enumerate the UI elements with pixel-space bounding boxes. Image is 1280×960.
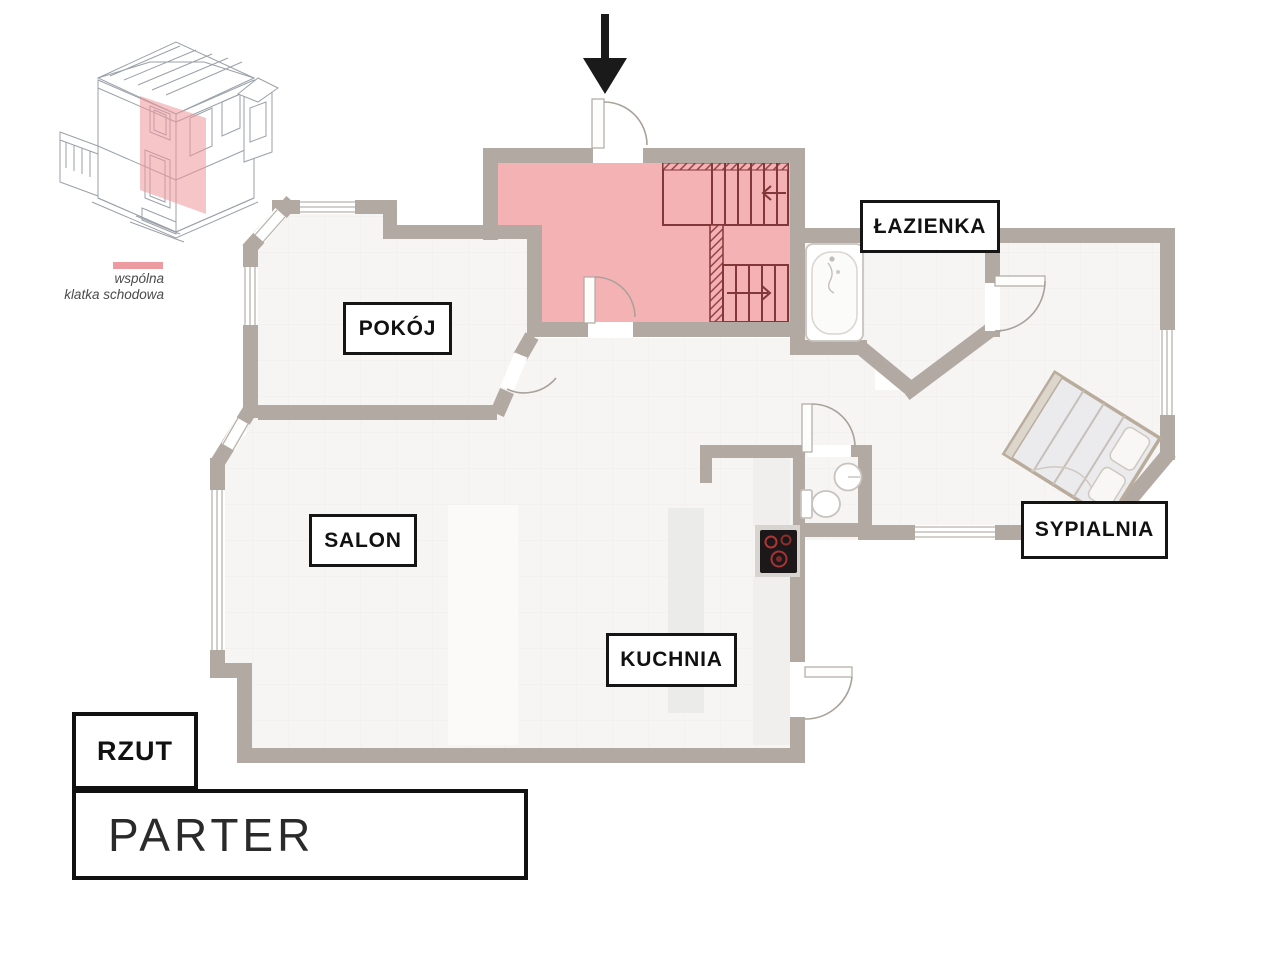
legend-color-swatch [113,262,163,269]
room-label-lazienka: ŁAZIENKA [860,200,1000,253]
legend-line-1: wspólna [14,271,164,287]
sink-icon [835,464,862,491]
stove-icon [755,525,800,577]
room-label-salon: SALON [309,514,417,567]
titleblock-floor: PARTER [72,789,528,880]
house-3d-icon [60,42,278,242]
room-label-pokoj: POKÓJ [343,302,452,355]
window-bedroom-bottom [915,525,995,540]
legend-caption: wspólna klatka schodowa [14,271,164,303]
window-pokoj-top [300,200,355,214]
room-label-kuchnia: KUCHNIA [606,633,737,687]
window-salon-left [210,490,225,650]
legend-line-2: klatka schodowa [14,287,164,303]
kitchen-exterior-door [790,662,852,719]
toilet-icon [801,490,840,518]
bathtub-icon [806,244,863,341]
titleblock-tag: RZUT [72,712,198,790]
entrance-arrow-icon [583,14,627,94]
floorplan-page: POKÓJ ŁAZIENKA SALON KUCHNIA SYPIALNIA R… [0,0,1280,960]
room-label-sypialnia: SYPIALNIA [1021,501,1168,559]
window-bedroom-right [1160,330,1175,415]
entrance-door [592,99,647,163]
window-pokoj-left [243,267,258,325]
